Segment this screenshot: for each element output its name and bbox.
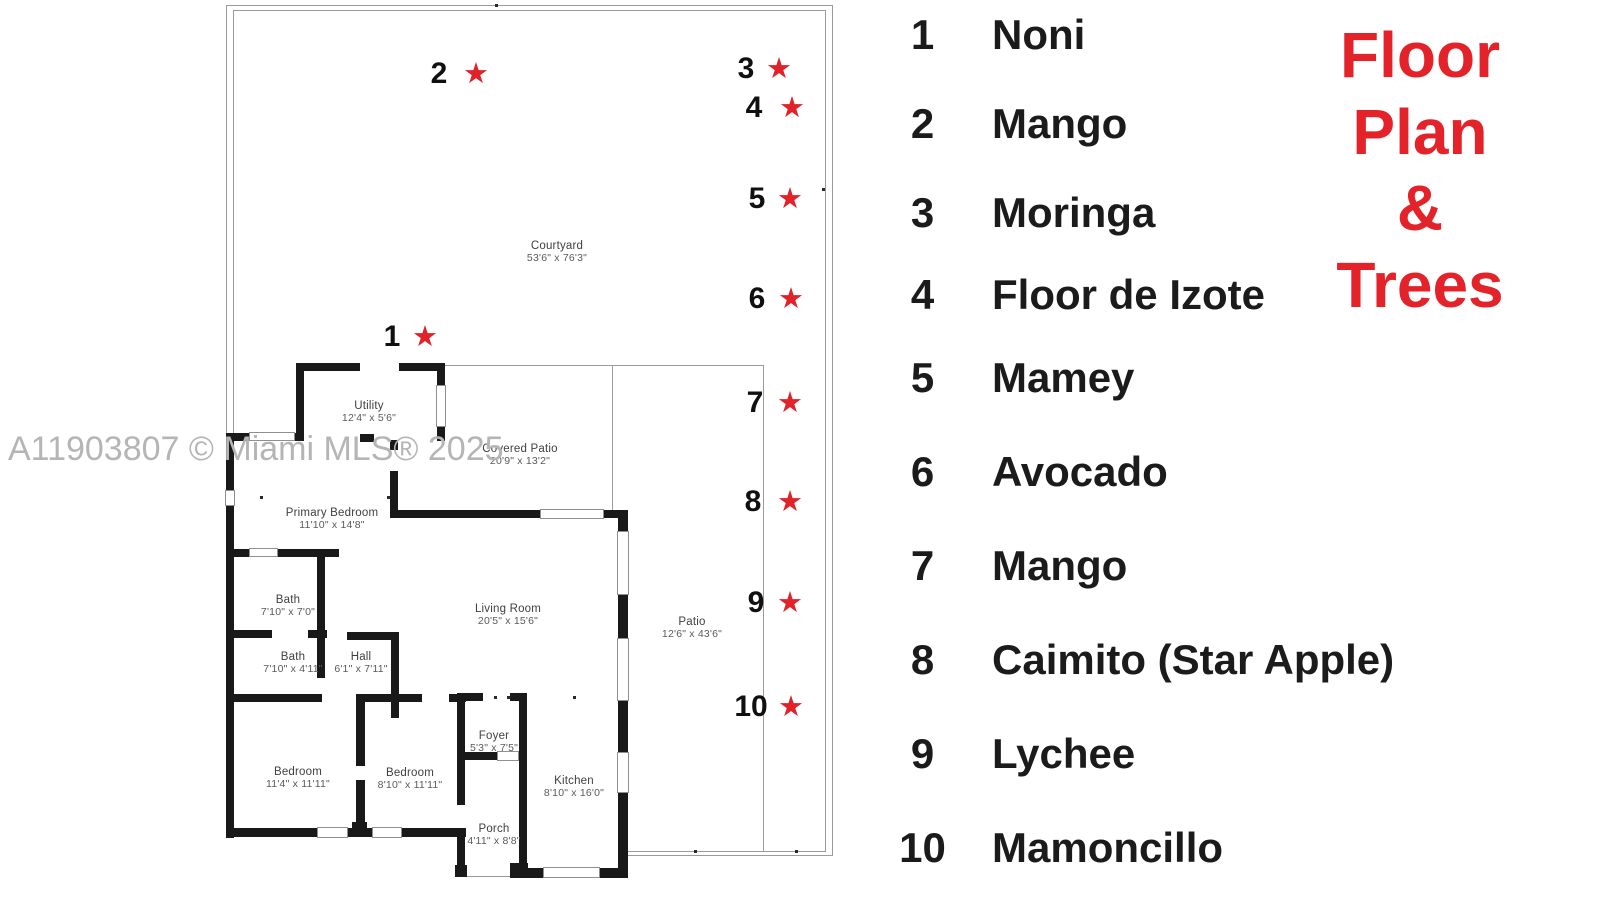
- legend-item-number: 4: [875, 270, 970, 320]
- room-label-living-room: Living Room 20'5" x 15'6": [418, 603, 598, 627]
- legend-item-name: Floor de Izote: [992, 270, 1265, 320]
- legend-item-number: 3: [875, 188, 970, 238]
- window-icon: [225, 490, 235, 506]
- border-outer-top: [226, 5, 833, 6]
- legend-item-name: Moringa: [992, 188, 1155, 238]
- wall: [356, 694, 422, 702]
- room-label-bedroom-2: Bedroom 8'10" x 11'11": [320, 767, 500, 791]
- legend-item-number: 10: [875, 823, 970, 873]
- title-line-1: Floor: [1310, 23, 1530, 87]
- wall: [278, 549, 339, 557]
- title-line-3: &: [1310, 176, 1530, 240]
- tick: [260, 496, 263, 499]
- tree-star-icon: ★: [461, 57, 491, 91]
- room-label-courtyard: Courtyard 53'6" x 76'3": [467, 240, 647, 264]
- border-outer-right: [832, 5, 833, 856]
- wall: [226, 694, 322, 702]
- room-label-hall: Hall 6'1" x 7'11": [271, 651, 451, 675]
- wall: [510, 863, 528, 878]
- tick: [694, 850, 697, 853]
- legend-item-number: 7: [875, 541, 970, 591]
- sliding-door-icon: [540, 509, 604, 519]
- tree-star-icon: ★: [764, 52, 794, 86]
- title-line-2: Plan: [1310, 100, 1530, 164]
- tree-marker-number-8: 8: [727, 486, 779, 518]
- wall: [391, 632, 399, 718]
- tree-star-icon: ★: [775, 485, 805, 519]
- tree-star-icon: ★: [775, 182, 805, 216]
- window-icon: [317, 827, 348, 838]
- tick: [573, 696, 576, 699]
- tree-marker-number-7: 7: [729, 387, 781, 419]
- room-label-kitchen: Kitchen 8'10" x 16'0": [484, 775, 664, 799]
- legend-item-number: 2: [875, 99, 970, 149]
- legend-item-name: Noni: [992, 10, 1085, 60]
- wall: [296, 363, 360, 371]
- border-outer-bottom: [628, 855, 833, 856]
- tick: [822, 188, 825, 191]
- wall: [308, 630, 327, 638]
- legend-item-number: 5: [875, 353, 970, 403]
- patio-top-line: [444, 365, 763, 366]
- mls-watermark: A11903807 © Miami MLS® 2025: [8, 431, 504, 467]
- tick: [507, 696, 510, 699]
- title-line-4: Trees: [1310, 253, 1530, 317]
- legend-item-number: 1: [875, 10, 970, 60]
- tree-star-icon: ★: [410, 320, 440, 354]
- border-inner-right: [825, 10, 826, 852]
- wall: [455, 865, 467, 877]
- tick: [495, 4, 498, 7]
- room-label-primary-bedroom: Primary Bedroom 11'10" x 14'8": [242, 507, 422, 531]
- window-icon: [543, 867, 600, 878]
- wall: [226, 630, 272, 638]
- tree-star-icon: ★: [775, 386, 805, 420]
- door-icon: [249, 548, 278, 557]
- legend-item-name: Avocado: [992, 447, 1168, 497]
- room-label-porch: Porch 4'11" x 8'8": [404, 823, 584, 847]
- tree-star-icon: ★: [776, 690, 806, 724]
- legend-item-name: Caimito (Star Apple): [992, 635, 1394, 685]
- tree-star-icon: ★: [775, 586, 805, 620]
- tree-marker-number-10: 10: [725, 691, 777, 723]
- window-icon: [617, 638, 629, 701]
- tick: [494, 696, 497, 699]
- wall: [356, 702, 365, 766]
- tick: [795, 850, 798, 853]
- tree-marker-number-2: 2: [413, 58, 465, 90]
- floor-plan-page: Courtyard 53'6" x 76'3" Utility 12'4" x …: [0, 0, 1600, 899]
- wall: [226, 549, 249, 557]
- room-label-foyer: Foyer 5'3" x 7'5": [404, 730, 584, 754]
- legend-item-name: Lychee: [992, 729, 1135, 779]
- legend-item-number: 6: [875, 447, 970, 497]
- room-label-patio: Patio 12'6" x 43'6": [602, 616, 782, 640]
- legend-item-name: Mamoncillo: [992, 823, 1223, 873]
- room-label-bath-1: Bath 7'10" x 7'0": [198, 594, 378, 618]
- tick: [387, 496, 390, 499]
- border-inner-top: [233, 10, 826, 11]
- porch-step-line: [467, 876, 510, 877]
- window-icon: [617, 531, 629, 595]
- tree-star-icon: ★: [777, 91, 807, 125]
- legend-item-number: 8: [875, 635, 970, 685]
- legend-item-number: 9: [875, 729, 970, 779]
- legend-item-name: Mango: [992, 541, 1127, 591]
- wall: [390, 471, 398, 512]
- legend-item-name: Mango: [992, 99, 1127, 149]
- window-icon: [372, 827, 402, 838]
- legend-item-name: Mamey: [992, 353, 1134, 403]
- covered-patio-line: [612, 365, 613, 513]
- room-label-utility: Utility 12'4" x 5'6": [279, 400, 459, 424]
- tree-star-icon: ★: [776, 282, 806, 316]
- tree-marker-number-4: 4: [728, 92, 780, 124]
